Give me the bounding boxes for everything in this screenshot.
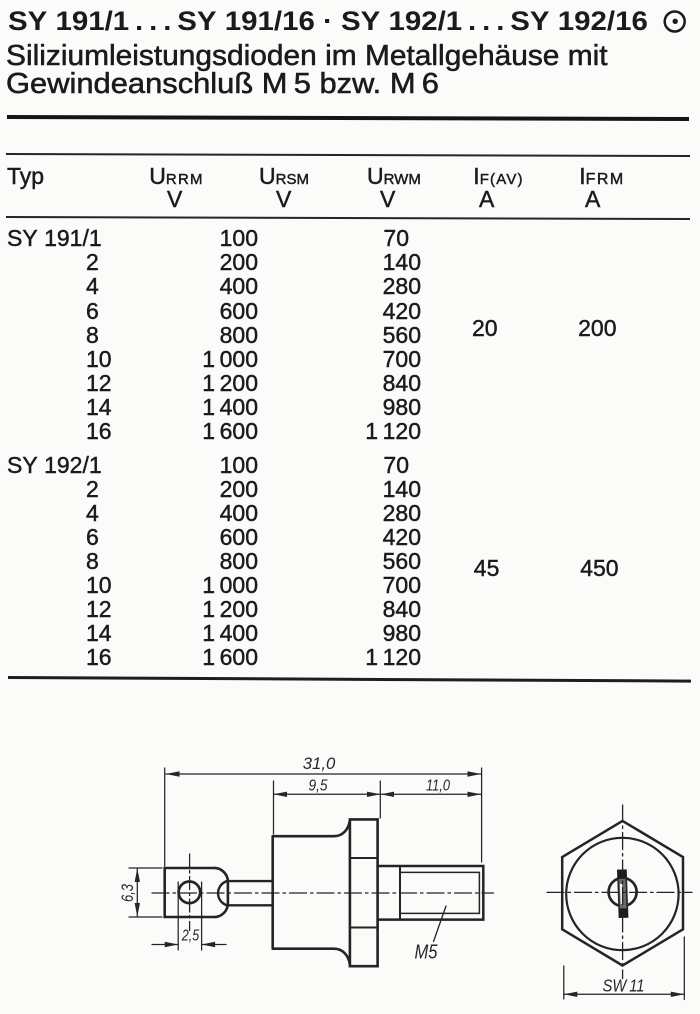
svg-text:9,5: 9,5 [309,778,328,795]
svg-text:11,0: 11,0 [426,777,450,794]
svg-text:6,3: 6,3 [118,884,137,902]
svg-text:SW 11: SW 11 [603,976,645,996]
svg-text:M5: M5 [415,941,438,964]
svg-text:2,5: 2,5 [181,928,200,945]
svg-text:31,0: 31,0 [303,754,336,773]
